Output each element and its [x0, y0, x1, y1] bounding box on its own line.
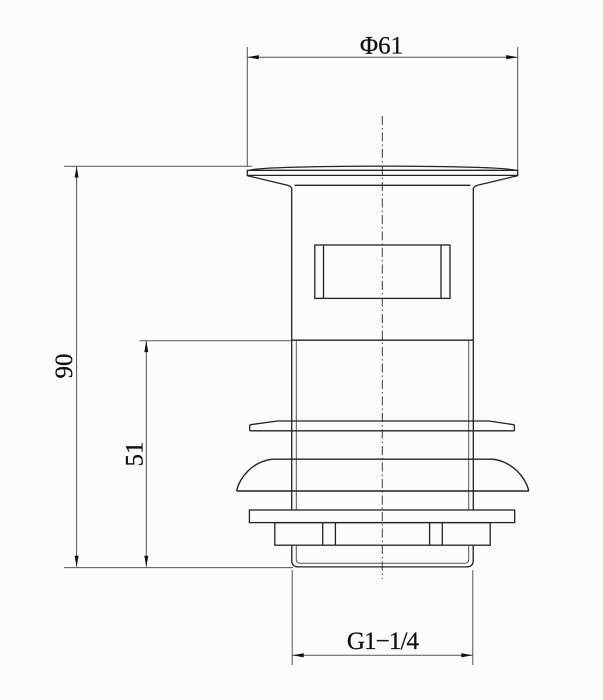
svg-text:90: 90: [51, 354, 78, 379]
svg-text:51: 51: [122, 442, 149, 467]
svg-text:Φ61: Φ61: [360, 33, 403, 60]
svg-text:G1−1/4: G1−1/4: [347, 628, 420, 655]
